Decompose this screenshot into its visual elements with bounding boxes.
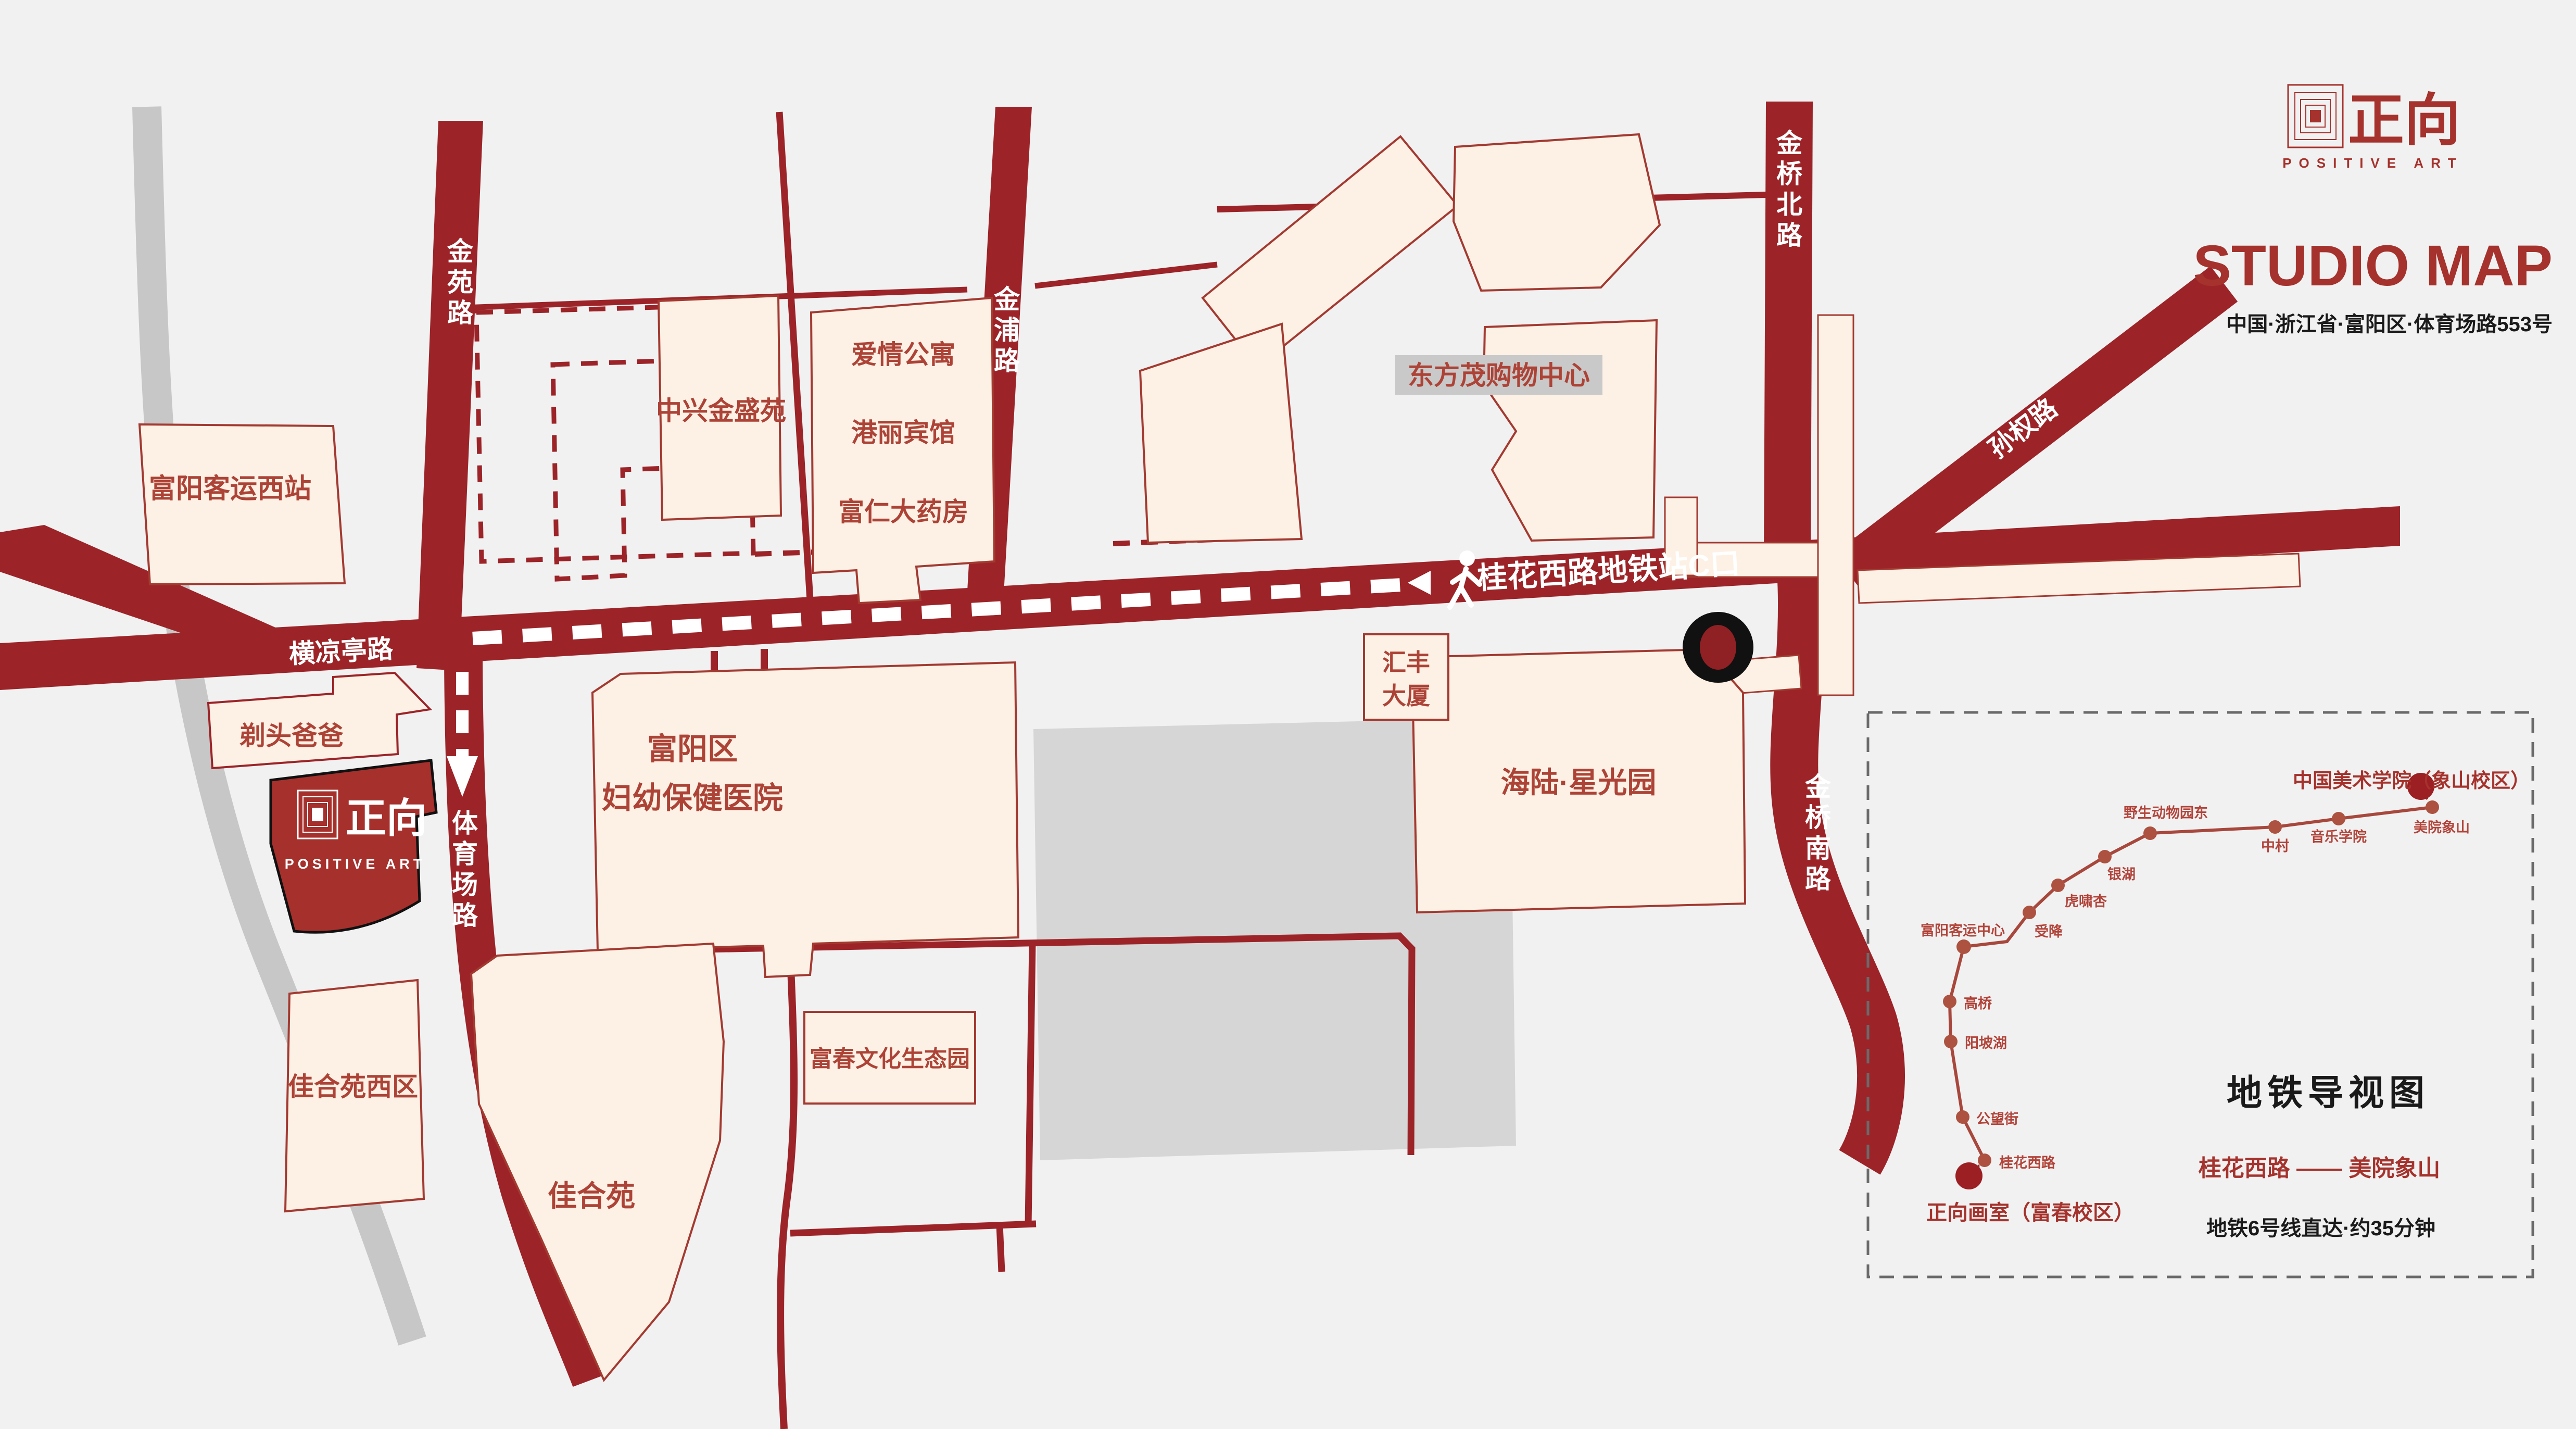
label-hospital-2: 妇幼保健医院 (602, 781, 783, 815)
origin-dot (1955, 1162, 1982, 1189)
metro-station-marker (1683, 612, 1753, 683)
brand-logo-en: POSITIVE ART (2282, 155, 2464, 171)
label-road-hengliangting: 横凉亭路 (288, 634, 395, 669)
page-title: STUDIO MAP (2193, 234, 2553, 298)
station-meiyuanxiangshan: 美院象山 (2414, 819, 2470, 835)
brand-logo-cn: 正向 (2348, 89, 2460, 152)
label-gangli: 港丽宾馆 (851, 418, 955, 447)
ped-band-vertical (1818, 315, 1853, 695)
road-minor-h (1000, 1225, 1002, 1272)
label-jiaheyuan: 佳合苑 (548, 1180, 635, 1212)
station-yeshengdongwuyuan: 野生动物园东 (2124, 805, 2208, 821)
building-fuyang-west-station (140, 424, 345, 584)
station-gongwangjie: 公望街 (1976, 1111, 2018, 1127)
label-jiaheyuan-west: 佳合苑西区 (288, 1072, 418, 1101)
station-marker-inner (1700, 625, 1736, 670)
label-road-jinyuan: 金苑路 (447, 237, 474, 328)
road-minor-g (1028, 944, 1032, 1225)
station-keyunzhongxin: 富阳客运中心 (1921, 922, 2005, 938)
label-hailu: 海陆·星光园 (1501, 766, 1657, 799)
studio-building: 正向 POSITIVE ART (271, 760, 436, 932)
studio-map-poster: 富阳客运西站 中兴金盛苑 爱情公寓 港丽宾馆 富仁大药房 东方茂购物中心 汇丰 … (0, 0, 2576, 1429)
panel-route: 桂花西路 —— 美院象山 (2199, 1156, 2440, 1181)
panel-dest-title: 中国美术学院（象山校区） (2293, 770, 2530, 792)
label-furen: 富仁大药房 (838, 497, 968, 527)
station-zhongcun: 中村 (2261, 838, 2289, 854)
label-dongfangmao: 东方茂购物中心 (1408, 361, 1590, 390)
label-titou: 剃头爸爸 (239, 721, 344, 750)
label-huifeng-2: 大厦 (1382, 682, 1430, 709)
station-guihuaxilu: 桂花西路 (1999, 1155, 2056, 1171)
panel-origin-title: 正向画室（富春校区） (1926, 1201, 2135, 1224)
panel-legend-title: 地铁导视图 (2227, 1073, 2430, 1113)
label-aiqing: 爱情公寓 (851, 340, 955, 369)
label-hospital-1: 富阳区 (647, 732, 738, 766)
studio-logo-cn: 正向 (346, 795, 427, 841)
map-canvas: 富阳客运西站 中兴金盛苑 爱情公寓 港丽宾馆 富仁大药房 东方茂购物中心 汇丰 … (0, 0, 2576, 1429)
station-huxiaoxing: 虎啸杏 (2065, 894, 2107, 909)
station-gaoqiao: 高桥 (1964, 995, 1992, 1011)
studio-building-shape (271, 760, 436, 932)
label-road-jinpu: 金浦路 (994, 285, 1020, 375)
station-yinhu: 银湖 (2107, 867, 2136, 882)
station-shouxiang: 受降 (2035, 923, 2063, 939)
label-zhongxing: 中兴金盛苑 (656, 396, 786, 425)
label-huifeng-1: 汇丰 (1382, 649, 1430, 676)
label-fuyang-west-station: 富阳客运西站 (149, 474, 311, 504)
studio-logo-en: POSITIVE ART (285, 856, 426, 872)
label-fuchun-park: 富春文化生态园 (810, 1046, 970, 1072)
station-yangpohu: 阳坡湖 (1965, 1035, 2007, 1051)
panel-note: 地铁6号线直达·约35分钟 (2206, 1217, 2435, 1240)
station-yinyuexueyuan: 音乐学院 (2310, 829, 2367, 845)
brand-address: 中国·浙江省·富阳区·体育场路553号 (2226, 313, 2553, 336)
building-hospital (592, 662, 1018, 977)
